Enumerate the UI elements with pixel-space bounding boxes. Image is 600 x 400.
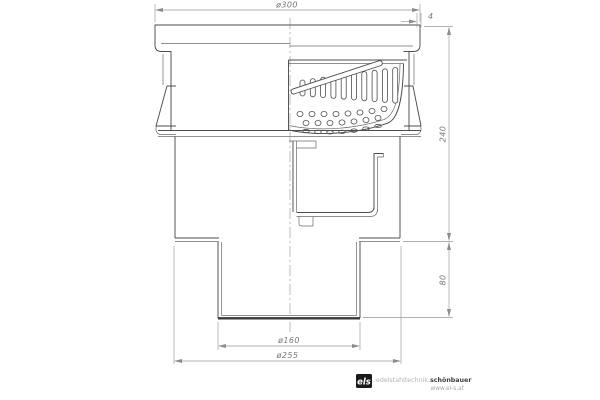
basket-hole — [315, 120, 321, 125]
basket-hole — [303, 129, 310, 132]
basket-holes — [297, 106, 387, 134]
basket-hole — [321, 111, 327, 116]
basket-hole — [309, 111, 315, 116]
dim-label-outlet-length: 80 — [439, 275, 448, 286]
cup-wall-inner — [378, 157, 384, 212]
flange-corner-left — [155, 45, 172, 52]
basket-hole — [339, 120, 345, 125]
siphon-cup — [289, 141, 384, 226]
cup-foot — [299, 217, 313, 227]
technical-drawing-page: ø300 4 240 80 ø160 — [0, 0, 600, 400]
clamp-left-body — [156, 86, 176, 126]
basket-hole — [333, 111, 339, 116]
dim-label-outlet-diameter: ø160 — [277, 336, 300, 345]
basket-hole — [327, 120, 333, 125]
basket-hole — [297, 111, 303, 116]
dim-label-body-height: 240 — [439, 126, 448, 142]
dim-label-base-diameter: ø255 — [276, 351, 299, 360]
dimension-top-diameter: ø300 — [155, 1, 420, 23]
basket-hole — [357, 110, 363, 115]
dimension-outlet-diameter: ø160 — [218, 322, 360, 350]
basket-hole — [303, 120, 309, 125]
joint-seat — [158, 131, 421, 137]
logo-name-bold: schönbauer — [430, 377, 472, 384]
top-flange — [155, 25, 420, 52]
dimension-outlet-length: 80 — [363, 242, 453, 318]
clamp-left — [156, 86, 176, 135]
logo-name-light: edelstahltechnik. — [376, 377, 430, 384]
flange-outline — [155, 25, 420, 46]
basket-slot — [382, 69, 387, 103]
cup-bottom-inner — [297, 207, 375, 213]
basket-hole — [363, 117, 369, 122]
outlet-pipe — [218, 242, 360, 318]
basket-handle — [291, 61, 382, 94]
basket-slot — [372, 70, 377, 101]
basket-hole — [345, 111, 351, 116]
clamp-right — [401, 86, 421, 135]
basket-hole — [351, 119, 357, 124]
dimension-body-height: 240 — [403, 27, 453, 242]
basket-slot — [352, 73, 357, 100]
basket-hole — [369, 108, 375, 113]
dim-label-top-diameter: ø300 — [275, 1, 298, 10]
logo: els edelstahltechnik.schönbauer www.el-s… — [356, 374, 472, 392]
basket-slot — [393, 67, 398, 103]
basket-hole — [381, 106, 387, 111]
floor-drain-drawing: ø300 4 240 80 ø160 — [0, 0, 600, 400]
basket-slot — [362, 72, 367, 101]
logo-website: www.el-s.at — [431, 386, 465, 392]
logo-mark-label: els — [357, 378, 371, 388]
cup-wall-outer — [374, 154, 384, 210]
lower-body — [175, 137, 400, 242]
clamp-right-body — [404, 86, 421, 126]
logo-company-name: edelstahltechnik.schönbauer — [376, 377, 472, 384]
basket-hole — [375, 115, 381, 120]
dim-label-edge-thickness: 4 — [428, 12, 434, 21]
strainer-basket — [289, 60, 408, 134]
